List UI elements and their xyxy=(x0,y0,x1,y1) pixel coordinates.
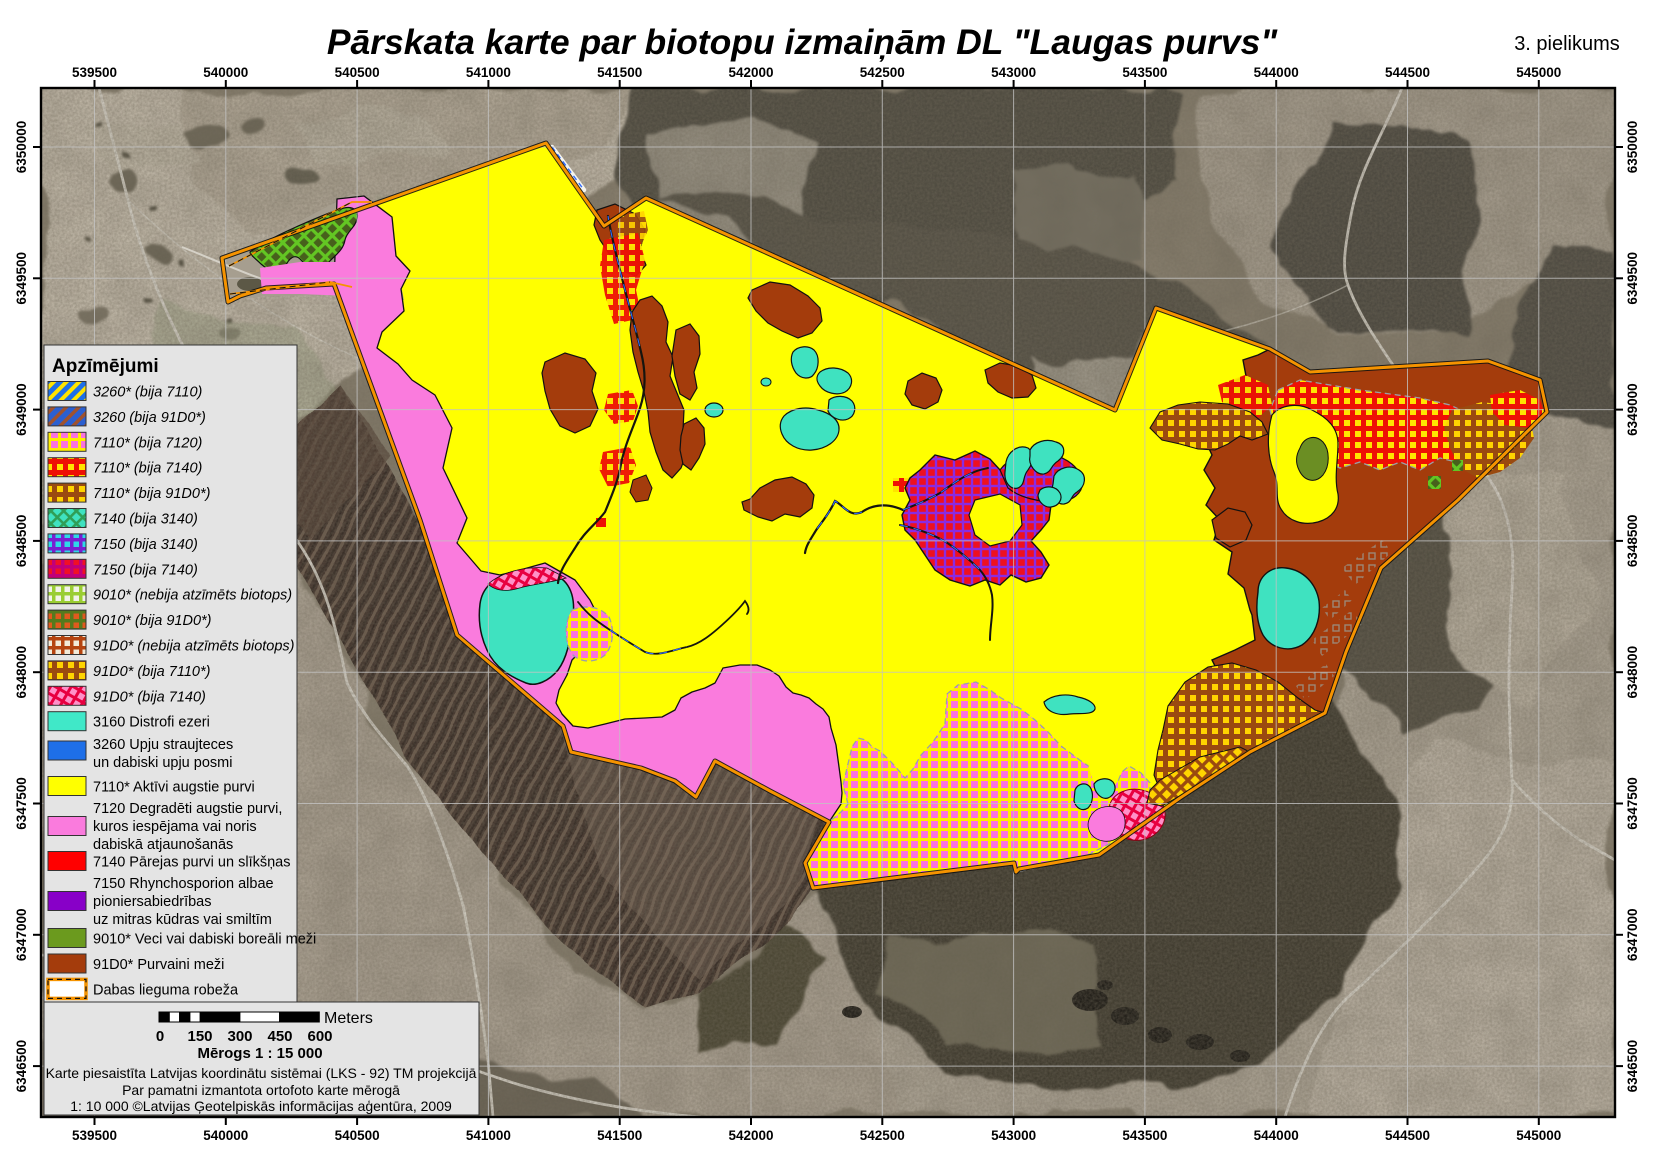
svg-text:544000: 544000 xyxy=(1254,65,1299,80)
svg-text:3260 (bija 91D0*): 3260 (bija 91D0*) xyxy=(93,410,206,426)
svg-text:7150 (bija 7140): 7150 (bija 7140) xyxy=(93,562,198,578)
svg-text:3160 Distrofi ezeri: 3160 Distrofi ezeri xyxy=(93,715,210,731)
svg-text:6349500: 6349500 xyxy=(1625,252,1640,305)
svg-text:6349500: 6349500 xyxy=(14,252,29,305)
svg-text:3260* (bija 7110): 3260* (bija 7110) xyxy=(93,385,202,401)
svg-text:6348000: 6348000 xyxy=(1625,646,1640,699)
svg-text:7150 Rhynchosporion albae: 7150 Rhynchosporion albae xyxy=(93,876,274,892)
svg-text:dabiskā atjaunošanās: dabiskā atjaunošanās xyxy=(93,837,233,853)
svg-text:540500: 540500 xyxy=(335,1128,380,1143)
svg-text:545000: 545000 xyxy=(1516,65,1561,80)
svg-text:kuros iespējama vai noris: kuros iespējama vai noris xyxy=(93,819,257,835)
svg-text:91D0* (bija 7140): 91D0* (bija 7140) xyxy=(93,689,206,705)
svg-text:540500: 540500 xyxy=(335,65,380,80)
svg-text:544000: 544000 xyxy=(1254,1128,1299,1143)
svg-text:7150 (bija 3140): 7150 (bija 3140) xyxy=(93,537,198,553)
svg-text:Karte piesaistīta Latvijas koo: Karte piesaistīta Latvijas koordinātu si… xyxy=(46,1065,477,1081)
svg-text:543500: 543500 xyxy=(1122,1128,1167,1143)
svg-text:un dabiski upju posmi: un dabiski upju posmi xyxy=(93,755,232,771)
svg-text:3. pielikums: 3. pielikums xyxy=(1514,33,1620,55)
svg-text:0: 0 xyxy=(156,1028,164,1045)
svg-text:6350000: 6350000 xyxy=(1625,121,1640,174)
svg-text:1: 10 000 ©Latvijas Ģeotelpisk: 1: 10 000 ©Latvijas Ģeotelpiskās informā… xyxy=(70,1098,452,1114)
svg-text:545000: 545000 xyxy=(1516,1128,1561,1143)
svg-text:Meters: Meters xyxy=(324,1010,373,1027)
svg-text:uz mitras kūdras vai smiltīm: uz mitras kūdras vai smiltīm xyxy=(93,912,272,928)
svg-text:7110* (bija 7140): 7110* (bija 7140) xyxy=(93,461,202,477)
svg-text:600: 600 xyxy=(307,1028,332,1045)
svg-text:6346500: 6346500 xyxy=(14,1040,29,1093)
svg-text:541500: 541500 xyxy=(597,1128,642,1143)
svg-text:544500: 544500 xyxy=(1385,1128,1430,1143)
svg-text:543500: 543500 xyxy=(1122,65,1167,80)
svg-text:6348500: 6348500 xyxy=(1625,515,1640,568)
svg-text:7110* (bija 91D0*): 7110* (bija 91D0*) xyxy=(93,486,210,502)
svg-text:544500: 544500 xyxy=(1385,65,1430,80)
svg-text:540000: 540000 xyxy=(203,65,248,80)
svg-text:7140 Pārejas purvi un slīkšņas: 7140 Pārejas purvi un slīkšņas xyxy=(93,855,290,871)
svg-text:7120 Degradēti augstie purvi,: 7120 Degradēti augstie purvi, xyxy=(93,801,282,817)
svg-text:91D0* (nebija atzīmēts biotops: 91D0* (nebija atzīmēts biotops) xyxy=(93,639,295,655)
svg-text:6349000: 6349000 xyxy=(14,383,29,436)
svg-text:Pārskata karte par biotopu izm: Pārskata karte par biotopu izmaiņām DL "… xyxy=(327,22,1279,62)
svg-text:Dabas lieguma robeža: Dabas lieguma robeža xyxy=(93,982,239,998)
svg-text:6346500: 6346500 xyxy=(1625,1040,1640,1093)
svg-text:6348000: 6348000 xyxy=(14,646,29,699)
svg-text:541500: 541500 xyxy=(597,65,642,80)
svg-text:9010* (bija 91D0*): 9010* (bija 91D0*) xyxy=(93,613,212,629)
svg-text:pioniersabiedrības: pioniersabiedrības xyxy=(93,894,212,910)
svg-text:6347500: 6347500 xyxy=(1625,777,1640,830)
svg-text:91D0* Purvaini meži: 91D0* Purvaini meži xyxy=(93,957,224,973)
svg-text:7110* Aktīvi augstie purvi: 7110* Aktīvi augstie purvi xyxy=(93,780,255,796)
svg-text:543000: 543000 xyxy=(991,65,1036,80)
svg-text:6350000: 6350000 xyxy=(14,121,29,174)
svg-text:541000: 541000 xyxy=(466,1128,511,1143)
svg-text:7110* (bija 7120): 7110* (bija 7120) xyxy=(93,435,202,451)
svg-text:Apzīmējumi: Apzīmējumi xyxy=(52,356,159,377)
svg-text:300: 300 xyxy=(227,1028,252,1045)
svg-text:541000: 541000 xyxy=(466,65,511,80)
svg-text:543000: 543000 xyxy=(991,1128,1036,1143)
svg-text:3260 Upju straujteces: 3260 Upju straujteces xyxy=(93,737,233,753)
svg-text:6347000: 6347000 xyxy=(1625,909,1640,962)
svg-text:9010* Veci vai dabiski boreāli: 9010* Veci vai dabiski boreāli meži xyxy=(93,932,316,948)
svg-text:91D0* (bija 7110*): 91D0* (bija 7110*) xyxy=(93,664,210,680)
svg-text:Mērogs 1 : 15 000: Mērogs 1 : 15 000 xyxy=(197,1045,322,1062)
svg-text:542000: 542000 xyxy=(728,1128,773,1143)
svg-text:6348500: 6348500 xyxy=(14,515,29,568)
svg-text:6347000: 6347000 xyxy=(14,909,29,962)
svg-text:542000: 542000 xyxy=(728,65,773,80)
svg-text:Par pamatni izmantota ortofoto: Par pamatni izmantota ortofoto karte mēr… xyxy=(122,1082,400,1098)
svg-text:540000: 540000 xyxy=(203,1128,248,1143)
svg-text:9010* (nebija atzīmēts biotops: 9010* (nebija atzīmēts biotops) xyxy=(93,588,292,604)
svg-text:6349000: 6349000 xyxy=(1625,383,1640,436)
svg-text:6347500: 6347500 xyxy=(14,777,29,830)
svg-text:539500: 539500 xyxy=(72,1128,117,1143)
svg-text:150: 150 xyxy=(187,1028,212,1045)
svg-text:542500: 542500 xyxy=(860,65,905,80)
svg-text:542500: 542500 xyxy=(860,1128,905,1143)
svg-text:450: 450 xyxy=(267,1028,292,1045)
svg-text:7140 (bija 3140): 7140 (bija 3140) xyxy=(93,512,198,528)
svg-text:539500: 539500 xyxy=(72,65,117,80)
